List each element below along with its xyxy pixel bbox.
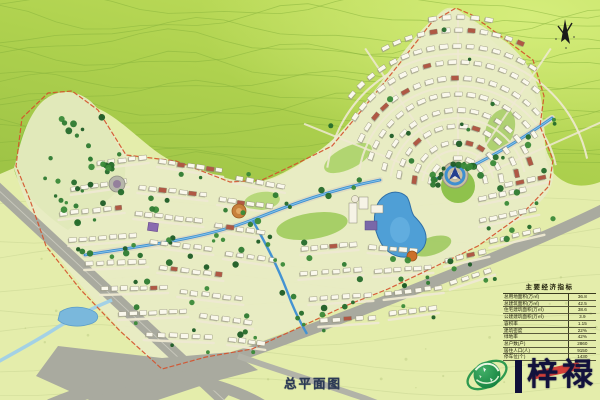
- indicator-row: 住宅建筑面积(万㎡)38.6: [503, 307, 596, 314]
- globe-logo-icon: [464, 352, 510, 398]
- plan-title: 总平面图: [284, 373, 342, 392]
- indicator-row: 总用地面积(万㎡)36.8: [503, 294, 596, 301]
- brand-watermark: 梓禄: [464, 353, 597, 397]
- indicator-row: 建筑密度22%: [503, 327, 596, 334]
- indicator-row: 总建筑面积(万㎡)42.5: [503, 300, 596, 307]
- indicator-row: 绿地率42%: [503, 334, 596, 341]
- indicators-title: 主要经济指标: [503, 281, 596, 291]
- economic-indicators-table: 主要经济指标 总用地面积(万㎡)36.8总建筑面积(万㎡)42.5住宅建筑面积(…: [503, 281, 596, 361]
- logo-divider: [515, 360, 522, 393]
- indicators-grid: 总用地面积(万㎡)36.8总建筑面积(万㎡)42.5住宅建筑面积(万㎡)38.6…: [503, 293, 596, 361]
- indicator-row: 公建建筑面积(万㎡)3.9: [503, 314, 596, 321]
- brand-name: 梓禄: [527, 357, 597, 392]
- master-plan-screenshot: 主要经济指标 总用地面积(万㎡)36.8总建筑面积(万㎡)42.5住宅建筑面积(…: [0, 0, 600, 400]
- indicator-row: 容积率1.15: [503, 320, 596, 327]
- indicator-row: 总户数(户)2860: [503, 340, 596, 347]
